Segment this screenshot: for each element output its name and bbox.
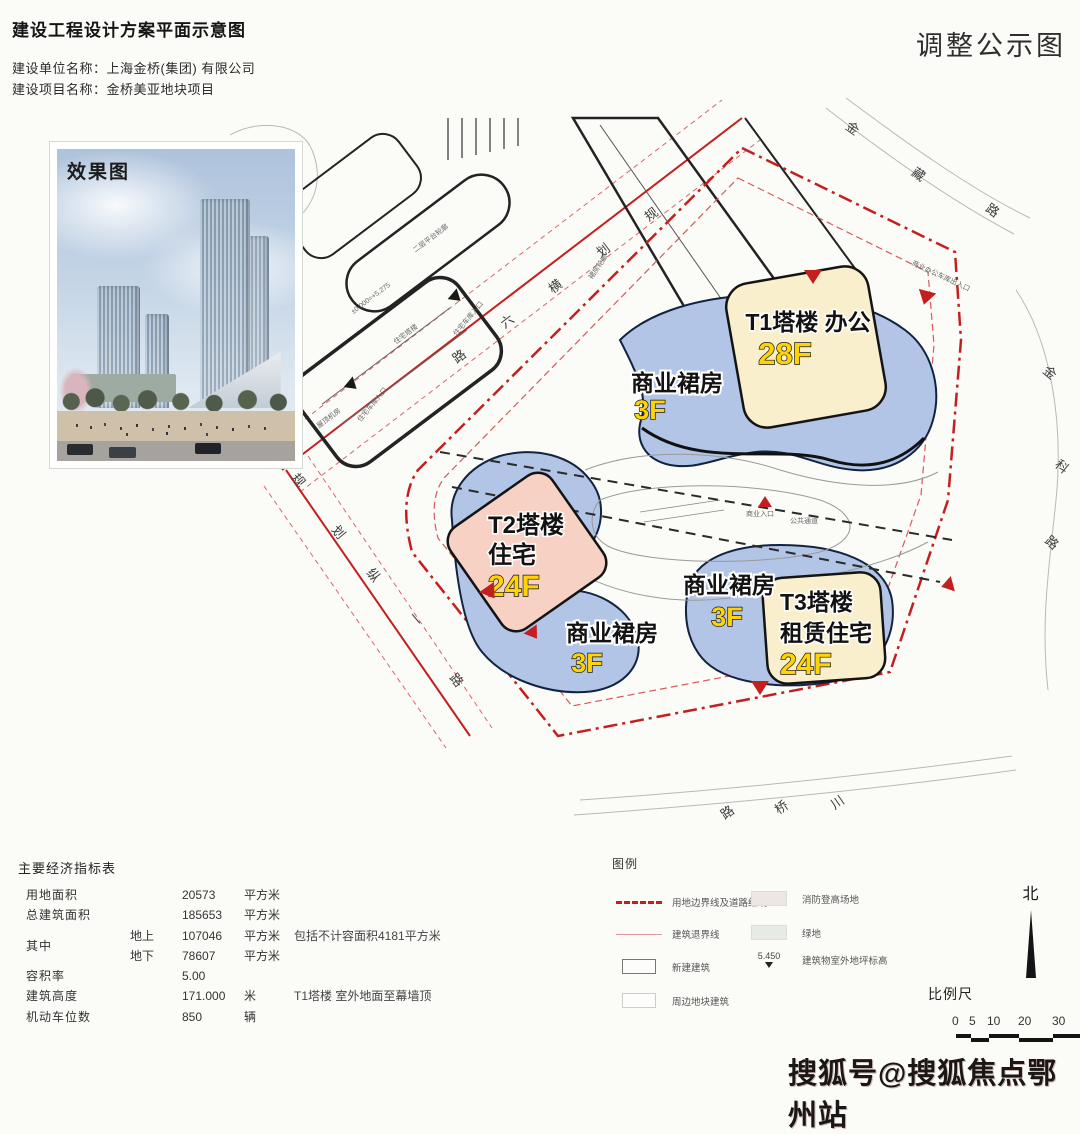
context-hatch <box>448 118 518 160</box>
podium-floors-west: 3F <box>571 648 603 678</box>
road-jincang-line2 <box>846 98 1030 218</box>
fire-access-swatch <box>746 891 792 906</box>
legend-item: 消防登高场地 <box>746 891 859 906</box>
annotation: 商业办公车库出入口 <box>911 258 972 293</box>
legend-item: 周边地块建筑 <box>616 993 729 1008</box>
table-row: 其中 地上 107046 平方米 包括不计容面积4181平方米 <box>18 926 448 946</box>
table-title: 主要经济指标表 <box>18 858 448 877</box>
adjacent-building-swatch <box>616 993 662 1008</box>
row-sub: 地下 <box>130 946 182 966</box>
road-name-jinke: 金 科 路 <box>1040 363 1072 553</box>
row-value: 185653 <box>182 905 244 925</box>
annotation: 二层平台轮廓 <box>411 222 450 254</box>
annotation: 裙房轮廓 <box>586 253 609 281</box>
t2-label-line1: T2塔楼 <box>488 512 564 539</box>
road-jinke-line <box>1016 290 1058 690</box>
context-roads <box>230 98 1058 815</box>
legend-label: 新建建筑 <box>672 960 710 974</box>
table-row: 容积率 5.00 <box>18 966 448 986</box>
road-chuanqiao-line2 <box>574 770 1016 815</box>
north-arrow-icon <box>1026 910 1036 978</box>
row-sub: 地上 <box>130 926 182 946</box>
rendering-label: 效果图 <box>67 157 130 184</box>
scalebar <box>956 1034 1080 1044</box>
legend: 图例 用地边界线及道路红线 建筑退界线 新建建筑 周边地块建筑 消防登高场地 绿… <box>612 855 1012 872</box>
table-row: 总建筑面积 185653 平方米 <box>18 905 448 925</box>
road-char: 划 <box>329 522 349 542</box>
row-unit: 辆 <box>244 1007 294 1027</box>
rendering-inset: 效果图 <box>50 142 302 468</box>
road-char: 路 <box>447 670 467 690</box>
legend-label: 建筑物室外地坪标高 <box>802 953 888 967</box>
row-unit: 平方米 <box>244 905 294 925</box>
entrance-marker-red <box>758 496 772 507</box>
road-sw-centerline <box>286 470 470 736</box>
scalebar-tick: 5 <box>969 1014 976 1028</box>
scalebar-segment <box>1053 1034 1080 1038</box>
road-char: 路 <box>718 802 737 822</box>
new-building-swatch <box>616 959 662 974</box>
legend-title: 图例 <box>612 855 1012 872</box>
row-value: 20573 <box>182 885 244 905</box>
project-name-line: 建设项目名称：金桥美亚地块项目 <box>12 79 215 98</box>
pink-thin-line-swatch <box>616 934 662 935</box>
builder-name-line: 建设单位名称：上海金桥(集团) 有限公司 <box>12 58 255 77</box>
row-value: 107046 <box>182 926 244 946</box>
road-chuanqiao-line <box>580 756 1012 800</box>
row-sub <box>130 986 182 1006</box>
row-unit: 平方米 <box>244 926 294 946</box>
scalebar-segment <box>989 1034 1019 1038</box>
legend-item: 新建建筑 <box>616 959 710 974</box>
row-note: T1塔楼 室外地面至幕墙顶 <box>294 986 448 1006</box>
road-char: 金 <box>1040 363 1060 383</box>
render-people-dots <box>76 424 78 427</box>
row-label: 机动车位数 <box>18 1007 130 1027</box>
scalebar-segment <box>971 1038 989 1042</box>
road-char: 路 <box>983 200 1002 220</box>
north-compass: 北 <box>1005 880 1057 978</box>
row-value: 171.000 <box>182 986 244 1006</box>
road-char: 纵 <box>364 565 384 585</box>
podium-label-north: 商业裙房 <box>631 370 723 396</box>
table-row: 机动车位数 850 辆 <box>18 1007 448 1027</box>
road-name-jincang: 金 藏 路 <box>843 118 1002 220</box>
podium-floors-north: 3F <box>634 395 666 425</box>
legend-item: 5.450 建筑物室外地坪标高 <box>746 951 888 968</box>
scalebar-segment <box>956 1034 971 1038</box>
row-sub <box>130 905 182 925</box>
adjustment-notice-title: 调整公示图 <box>916 24 1066 63</box>
row-label: 其中 <box>18 926 130 946</box>
render-car <box>195 443 221 454</box>
legend-item: 建筑退界线 <box>616 927 720 941</box>
economic-indicator-table: 主要经济指标表 用地面积 20573 平方米 总建筑面积 185653 平方米 … <box>18 858 448 1027</box>
legend-label: 周边地块建筑 <box>672 994 729 1008</box>
row-note <box>294 946 448 966</box>
road-char: 路 <box>1042 533 1062 553</box>
row-unit: 平方米 <box>244 946 294 966</box>
green-space-swatch <box>746 925 792 940</box>
t3-label-line1: T3塔楼 <box>780 589 853 615</box>
red-dashed-line-swatch <box>616 901 662 904</box>
scalebar-ticks: 0 5 10 20 30 <box>952 1014 1080 1028</box>
entrance-marker-red <box>751 681 769 695</box>
podium-label-west: 商业裙房 <box>566 620 658 646</box>
t1-floors: 28F <box>758 336 811 371</box>
row-value: 78607 <box>182 946 244 966</box>
render-car <box>109 447 135 458</box>
road-char: 科 <box>1052 457 1072 477</box>
legend-label: 建筑退界线 <box>672 927 720 941</box>
t3-floors: 24F <box>780 648 832 681</box>
t2-label-line2: 住宅 <box>488 541 536 569</box>
row-sub <box>130 1007 182 1027</box>
watermark: 搜狐号@搜狐焦点鄂州站 <box>788 1050 1080 1134</box>
row-note <box>294 966 448 986</box>
legend-label: 消防登高场地 <box>802 892 859 906</box>
elevation-mark-swatch: 5.450 <box>746 951 792 968</box>
row-note <box>294 1007 448 1027</box>
road-name-guihua-zongyi: 规 划 纵 一 路 <box>289 470 467 690</box>
annotation: 商业入口 <box>746 509 774 518</box>
legend-item: 用地边界线及道路红线 <box>616 895 767 909</box>
row-value: 5.00 <box>182 966 244 986</box>
page-title: 建设工程设计方案平面示意图 <box>12 16 246 41</box>
row-label: 用地面积 <box>18 885 130 905</box>
scalebar-tick: 20 <box>1018 1014 1031 1028</box>
scalebar-segment <box>1019 1038 1053 1042</box>
road-char: 路 <box>450 346 469 366</box>
entrance-marker-red <box>939 576 955 595</box>
road-char: 桥 <box>772 797 791 817</box>
row-unit <box>244 966 294 986</box>
entrance-marker-red <box>915 289 936 307</box>
road-char: 金 <box>843 118 862 138</box>
road-char: 规 <box>289 470 309 490</box>
row-unit: 米 <box>244 986 294 1006</box>
row-note: 包括不计容面积4181平方米 <box>294 926 448 946</box>
row-sub <box>130 885 182 905</box>
annotation: 公共通道 <box>790 516 818 525</box>
road-char: 横 <box>546 276 565 296</box>
road-char: 川 <box>828 792 847 812</box>
rendering-image: 效果图 <box>57 149 295 461</box>
scalebar-tick: 10 <box>987 1014 1000 1028</box>
t2-floors: 24F <box>488 570 540 603</box>
north-label: 北 <box>1005 880 1057 904</box>
row-label: 容积率 <box>18 966 130 986</box>
road-char: 六 <box>498 311 517 331</box>
row-label: 建筑高度 <box>18 986 130 1006</box>
row-unit: 平方米 <box>244 885 294 905</box>
annotation: 住宅车库入口 <box>355 385 389 423</box>
road-char: 一 <box>406 609 426 629</box>
t3-label-line2: 租赁住宅 <box>780 620 872 646</box>
table-row: 建筑高度 171.000 米 T1塔楼 室外地面至幕墙顶 <box>18 986 448 1006</box>
merged-label: 其中 <box>26 936 52 956</box>
podium-label-east: 商业裙房 <box>683 572 775 598</box>
scalebar-tick: 30 <box>1052 1014 1065 1028</box>
render-plaza <box>57 411 295 442</box>
legend-label: 绿地 <box>802 926 821 940</box>
row-sub <box>130 966 182 986</box>
render-car <box>67 444 93 455</box>
elevation-value: 5.450 <box>758 951 781 961</box>
table-row: 地下 78607 平方米 <box>18 946 448 966</box>
road-char: 藏 <box>909 164 928 184</box>
scalebar-tick: 0 <box>952 1014 959 1028</box>
legend-item: 绿地 <box>746 925 821 940</box>
row-label: 总建筑面积 <box>18 905 130 925</box>
table-row: 用地面积 20573 平方米 <box>18 885 448 905</box>
row-value: 850 <box>182 1007 244 1027</box>
podium-floors-east: 3F <box>711 602 743 632</box>
elevation-triangle-icon <box>765 962 773 968</box>
row-note <box>294 905 448 925</box>
row-note <box>294 885 448 905</box>
t1-label: T1塔楼 办公 <box>745 309 870 335</box>
render-road <box>57 441 295 461</box>
scalebar-label: 比例尺 <box>928 984 973 1004</box>
entrance-marker-black <box>344 376 361 394</box>
